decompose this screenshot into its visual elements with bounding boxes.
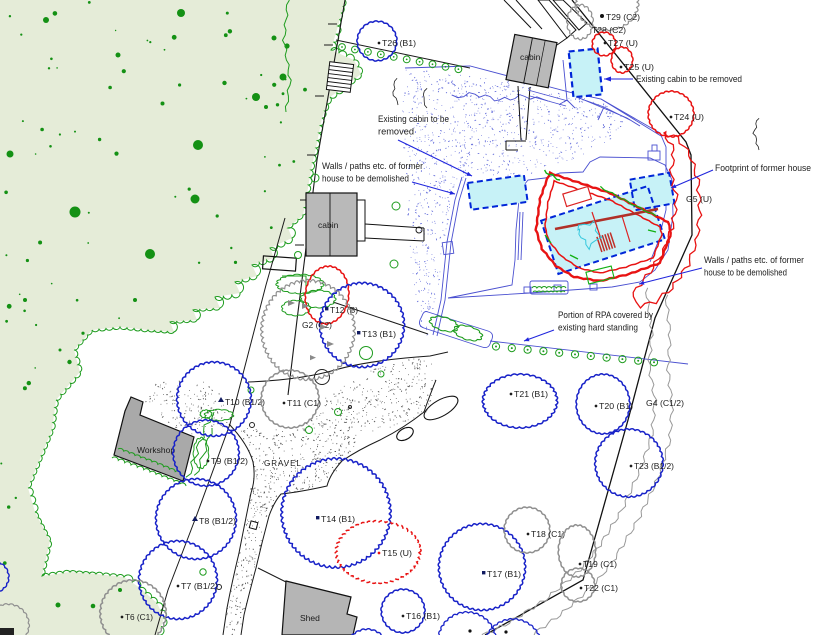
svg-text:Workshop: Workshop	[137, 445, 175, 455]
svg-text:Existing cabin to be: Existing cabin to be	[378, 114, 449, 125]
svg-text:house to be demolished: house to be demolished	[704, 268, 787, 279]
svg-text:T15 (U): T15 (U)	[382, 549, 412, 558]
svg-text:T11 (C1): T11 (C1)	[287, 399, 321, 408]
svg-text:T25 (U): T25 (U)	[624, 63, 654, 72]
svg-text:Existing cabin to be removed: Existing cabin to be removed	[636, 74, 742, 85]
svg-text:cabin: cabin	[520, 52, 541, 62]
svg-text:T9 (B1/2): T9 (B1/2)	[211, 457, 248, 466]
svg-text:GRAVEL: GRAVEL	[264, 459, 302, 468]
svg-text:T21 (B1): T21 (B1)	[514, 390, 548, 399]
svg-text:T14 (B1): T14 (B1)	[321, 515, 355, 524]
svg-text:house to be demolished: house to be demolished	[322, 174, 409, 185]
svg-text:Walls / paths etc. of former: Walls / paths etc. of former	[704, 255, 804, 266]
svg-text:G4 (C1/2): G4 (C1/2)	[646, 399, 684, 408]
svg-text:T17 (B1): T17 (B1)	[487, 570, 521, 579]
svg-text:T23 (B1/2): T23 (B1/2)	[634, 462, 674, 471]
svg-text:G2 (C2): G2 (C2)	[302, 321, 332, 330]
svg-text:cabin: cabin	[318, 220, 339, 230]
svg-text:T22 (C1): T22 (C1)	[584, 584, 618, 593]
svg-text:T24 (U): T24 (U)	[674, 113, 704, 122]
svg-text:Shed: Shed	[300, 613, 320, 623]
svg-text:T18 (C1): T18 (C1)	[531, 530, 565, 539]
svg-text:T19 (C1): T19 (C1)	[583, 560, 617, 569]
svg-text:Footprint of former house: Footprint of former house	[715, 163, 811, 174]
svg-text:T7 (B1/2): T7 (B1/2)	[181, 582, 218, 591]
svg-text:removed: removed	[378, 127, 414, 138]
svg-text:T26 (B1): T26 (B1)	[382, 39, 416, 48]
svg-text:T20 (B1): T20 (B1)	[599, 402, 633, 411]
svg-text:T10 (B1/2): T10 (B1/2)	[225, 398, 265, 407]
svg-text:T6 (C1): T6 (C1)	[125, 613, 153, 622]
svg-text:T8 (B1/2): T8 (B1/2)	[199, 517, 236, 526]
svg-text:Walls / paths etc. of former: Walls / paths etc. of former	[322, 161, 423, 172]
svg-text:G5 (U): G5 (U)	[686, 195, 712, 204]
svg-text:Portion of RPA covered by: Portion of RPA covered by	[558, 310, 653, 321]
svg-text:T13 (B1): T13 (B1)	[362, 330, 396, 339]
svg-text:existing hard standing: existing hard standing	[558, 323, 638, 334]
svg-text:T12 (B): T12 (B)	[330, 306, 358, 315]
svg-text:T16 (B1): T16 (B1)	[406, 612, 440, 621]
svg-text:T29 (C2): T29 (C2)	[606, 13, 640, 22]
